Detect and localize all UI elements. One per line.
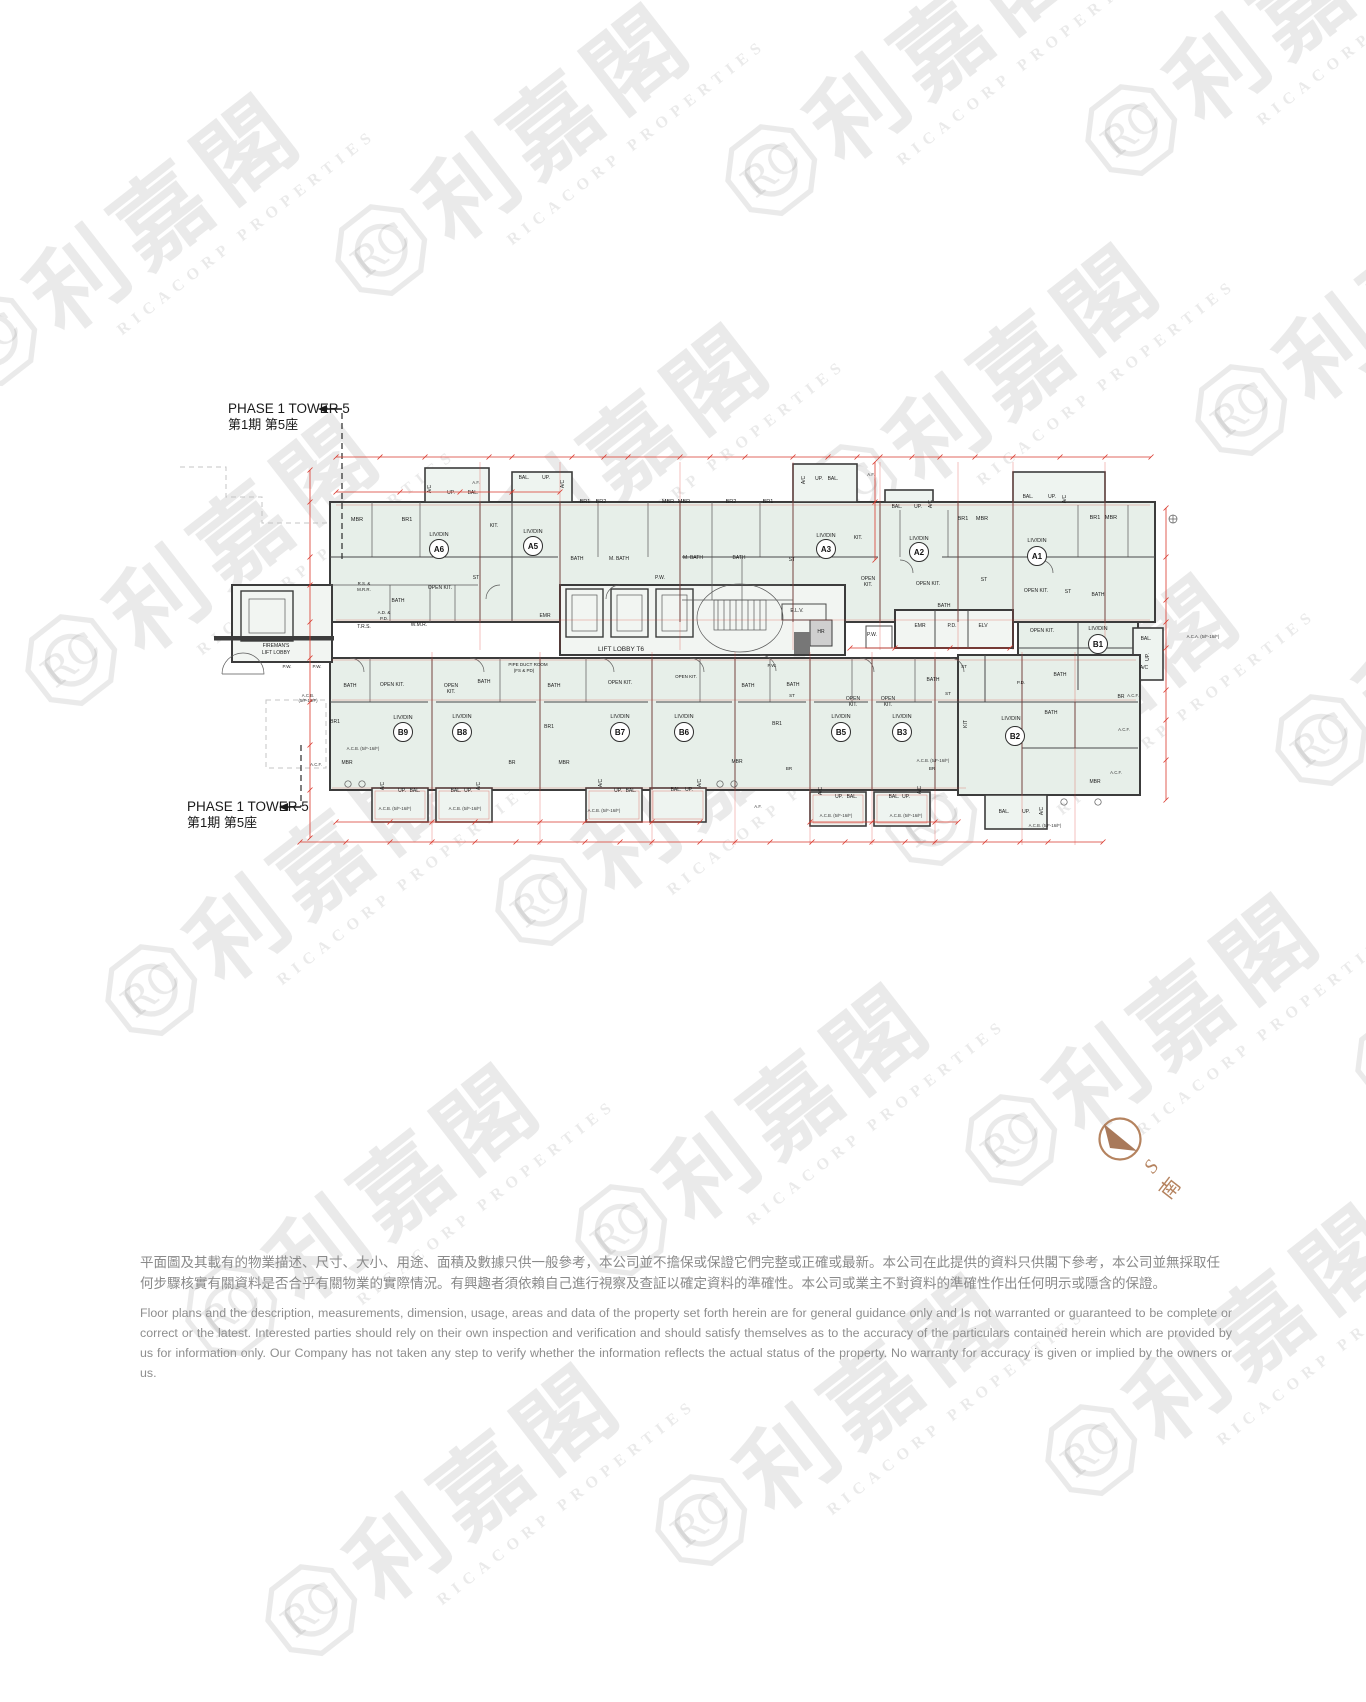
fixture-mark [1095,799,1101,805]
room-label: BAL. [626,788,637,794]
room-label: BATH [927,677,940,683]
room-label: LIV/DIN [1088,626,1107,632]
room-label: LIV/DIN [429,532,448,538]
room-label: A/C [1062,494,1068,503]
room-label: UP. [542,475,550,481]
ac-annotation: A.C.B. (5/F-16/F) [347,746,380,751]
room-label: LIV/DIN [674,714,693,720]
room-label: UP. [815,476,823,482]
ac-annotation: A.C.F. [310,762,322,767]
ac-annotation: A.C.B. (5/F-16/F) [890,813,923,818]
room-label: PIPE DUCT ROOM [508,662,547,667]
room-label: LIV/DIN [610,714,629,720]
room-label: BATH [571,556,584,562]
room-label: ST [789,557,795,563]
phase-top-zh: 第1期 第5座 [228,417,298,432]
unit-badge-label: B2 [1010,732,1021,741]
room-label: KIT [963,720,969,728]
room-label: FIREMAN'S [263,643,290,649]
room-label: A/C [1140,665,1149,671]
unit-badge-label: A1 [1032,552,1043,561]
unit-badge-label: A2 [914,548,925,557]
ac-annotation: (5/F-16/F) [298,698,318,703]
room-label: A/C [697,778,703,787]
adjacent-outline-2 [266,700,326,768]
disclaimer: 平面圖及其載有的物業描述、尺寸、大小、用途、面積及數據只供一般參考，本公司並不擔… [140,1252,1232,1383]
room-label: T.R.S. [357,624,371,630]
room-label: UP. [614,788,622,794]
grid-mark [1169,515,1177,523]
room-label: ST [961,664,967,669]
room-label: ELV [978,623,988,629]
room-label: LIV/DIN [1027,538,1046,544]
room-label: MBR [1105,515,1117,521]
room-label: MBR [678,499,690,505]
room-label: BR [1118,694,1125,700]
room-label: A/C [917,785,923,794]
disclaimer-en: Floor plans and the description, measure… [140,1303,1232,1383]
room-label: UP. [835,794,843,800]
room-label: LIV/DIN [892,714,911,720]
room-label: BATH [787,682,800,688]
room-label: W.M.R. [411,622,427,628]
fixture-mark [1061,799,1067,805]
room-label: (FS & PD) [514,668,535,673]
room-label: BAL. [999,809,1010,815]
room-label: KIT. [490,523,499,529]
svg-text:RC: RC [662,1482,740,1558]
room-label: OPEN KIT. [1024,588,1048,594]
balcony-b6 [650,788,706,822]
room-label: BATH [938,603,951,609]
room-label: P.W. [768,663,777,668]
room-label: BR1 [580,499,591,505]
disclaimer-zh-line1: 平面圖及其載有的物業描述、尺寸、大小、用途、面積及數據只供一般參考，本公司並不擔… [140,1252,1232,1273]
room-label: BAL. [468,490,479,496]
room-label: OPEN KIT. [675,674,697,679]
room-label: P.D. [1017,680,1025,685]
unit-badge-label: B8 [457,728,468,737]
balcony-a2 [885,490,933,502]
ac-annotation: A.F. [754,804,761,809]
room-label: BATH [742,683,755,689]
room-label: BR [786,766,793,771]
room-label: BATH [344,683,357,689]
room-label: A/C [476,781,482,790]
ricacorp-logo-icon: RC [1029,1388,1153,1512]
ricacorp-logo-icon: RC [249,1548,373,1672]
room-label: BATH [1045,710,1058,716]
room-label: A/C [928,499,934,508]
ac-annotation: A.C.F. [1110,770,1122,775]
unit-badge-label: A5 [528,542,539,551]
room-label: LIV/DIN [909,536,928,542]
room-label: MBR [662,499,674,505]
unit-badge-label: A3 [821,545,832,554]
room-label: BR1 [544,724,554,730]
room-label: A/C [560,479,566,488]
room-label: LIV/DIN [831,714,850,720]
room-label: BR2 [596,499,607,505]
room-label: BAL. [1023,494,1034,500]
ac-annotation: A.C.B. (5/F-16/F) [1029,823,1062,828]
room-label: ST [981,577,987,583]
room-label: BAL. [671,787,682,793]
ac-annotation: A.C.F. [1127,693,1139,698]
room-label: UP. [464,788,472,794]
room-label: UP. [1145,653,1151,661]
room-label: OPEN KIT. [1030,628,1054,634]
compass-needle-icon [1104,1124,1137,1151]
unit-badge-label: B1 [1093,640,1104,649]
room-label: LIFT LOBBY [262,650,291,656]
unit-badge-label: B3 [897,728,908,737]
room-label: BAL. [451,788,462,794]
room-label: MBR [731,759,743,765]
room-label: UP. [398,788,406,794]
room-label: P.W. [283,664,292,669]
room-label: OPEN KIT. [608,680,632,686]
watermark-latin: RICACORP PROPERTIES [434,1392,705,1609]
room-label: MBR [341,760,353,766]
room-label: KIT. [447,689,456,695]
room-label: BAL. [828,476,839,482]
room-label: BR1 [402,517,413,523]
room-label: BR1 [772,721,782,727]
room-label: BAL. [410,788,421,794]
ac-annotation: A.C.B. (5/F-16/F) [820,813,853,818]
room-label: BAL. [892,504,903,510]
room-label: BATH [392,598,405,604]
room-label: UP. [914,504,922,510]
room-label: MBR [1089,779,1101,785]
room-label: P.D. [947,623,956,629]
compass-south-letter: S [1140,1156,1163,1177]
corridor-wall [214,636,334,641]
room-label: A/C [801,475,807,484]
room-label: KIT. [849,702,858,708]
room-label: UP. [902,794,910,800]
room-label: A.D. & [378,610,391,615]
disclaimer-zh-line2: 何步驟核實有關資料是否合乎有關物業的實際情況。有興趣者須依賴自己進行視察及查証以… [140,1273,1232,1294]
phase-marker-bottom: PHASE 1 TOWER 5 第1期 第5座 [187,745,309,830]
room-label: BR2 [726,499,737,505]
svg-text:RC: RC [1052,1412,1130,1488]
unit-badge-label: B7 [615,728,626,737]
room-label: UP. [1022,809,1030,815]
room-label: OPEN KIT. [428,585,452,591]
room-label: UP. [1048,494,1056,500]
room-label: KIT. [884,702,893,708]
ac-annotation: A.C.B. (5/F-16/F) [449,806,482,811]
ac-annotation: A.C.B. (5/F-16/F) [379,806,412,811]
room-label: LIV/DIN [1001,716,1020,722]
room-label: P.W. [313,664,322,669]
room-label: EMR [914,623,926,629]
shaft [794,632,810,654]
room-label: BATH [733,555,746,561]
floor-plan: PHASE 1 TOWER 5 第1期 第5座 PHASE 1 TOWER 5 … [0,0,1366,1366]
room-label: M.R.R. [357,587,371,592]
room-label: ST [789,693,795,698]
room-label: LIV/DIN [452,714,471,720]
room-label: ST [1065,589,1071,595]
compass-south-cjk: 南 [1155,1174,1185,1204]
adjacent-outline [180,467,332,523]
ricacorp-logo-icon: RC [639,1458,763,1582]
room-label: MBR [558,760,570,766]
ac-annotation: A.F. [472,480,479,485]
room-label: BATH [548,683,561,689]
room-label: BAL. [889,794,900,800]
room-label: UP. [685,787,693,793]
room-label: UP. [447,490,455,496]
room-label: M. BATH [683,555,703,561]
room-label: MBR [351,517,363,523]
room-label: BAL. [519,475,530,481]
room-label: P.D. [380,616,388,621]
room-label: P.W. [867,632,877,638]
balcony-a6 [425,468,489,502]
unit-badge-label: B5 [836,728,847,737]
room-label: BAL. [1141,636,1152,642]
room-label: BATH [1054,672,1067,678]
room-label: BATH [478,679,491,685]
page: { "watermark": {"logo_text": "RC", "cjk"… [0,0,1366,1366]
room-label: BR1 [763,499,774,505]
ac-annotation: A.C.B. (5/F-16/F) [588,808,621,813]
room-label: M. BATH [609,556,629,562]
room-label: HR [817,629,825,635]
room-label: MBR [976,516,988,522]
room-label: ST [473,575,479,581]
ac-annotation: A.F. [867,472,874,477]
room-label: OPEN KIT. [916,581,940,587]
room-label: A/C [380,781,386,790]
unit-badge-label: B6 [679,728,690,737]
room-label: LIV/DIN [393,715,412,721]
room-label: KIT. [854,535,863,541]
svg-text:RC: RC [272,1572,350,1648]
room-label: BR1 [330,719,340,725]
lower-slab [330,658,970,790]
room-label: BAL. [847,794,858,800]
room-label: BR [929,766,936,771]
unit-badge-label: A6 [434,545,445,554]
room-label: ST [945,691,951,696]
room-label: KIT. [864,582,873,588]
room-label: A/C [818,786,824,795]
room-label: BR1 [1090,515,1101,521]
room-label: LIV/DIN [523,529,542,535]
room-label: LIV/DIN [816,533,835,539]
unit-badge-label: B9 [398,728,409,737]
room-label: P.W. [655,575,665,581]
room-label: E.L.V. [790,608,803,614]
room-label: A/C [1039,806,1045,815]
room-label: BR1 [958,516,969,522]
ac-annotation: A.C.F. [1118,727,1130,732]
service-block [895,610,1013,648]
ac-annotation: A.C.B. (5/F-16/F) [917,758,950,763]
phase-bottom-zh: 第1期 第5座 [187,815,257,830]
room-label: BR [509,760,516,766]
room-label: R.S. & [358,581,371,586]
compass: S 南 [1100,1119,1186,1204]
room-label: A/C [598,778,604,787]
ac-annotation: A.C.A. (5/F-16/F) [1187,634,1220,639]
lift-lobby-label: LIFT LOBBY T6 [598,646,644,653]
room-label: EMR [539,613,551,619]
room-label: OPEN KIT. [380,682,404,688]
room-label: BATH [1092,592,1105,598]
